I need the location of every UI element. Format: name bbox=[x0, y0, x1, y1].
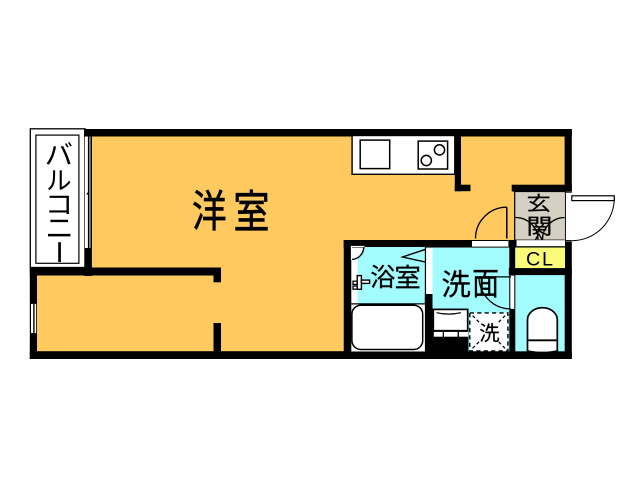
svg-text:CL: CL bbox=[526, 249, 555, 271]
